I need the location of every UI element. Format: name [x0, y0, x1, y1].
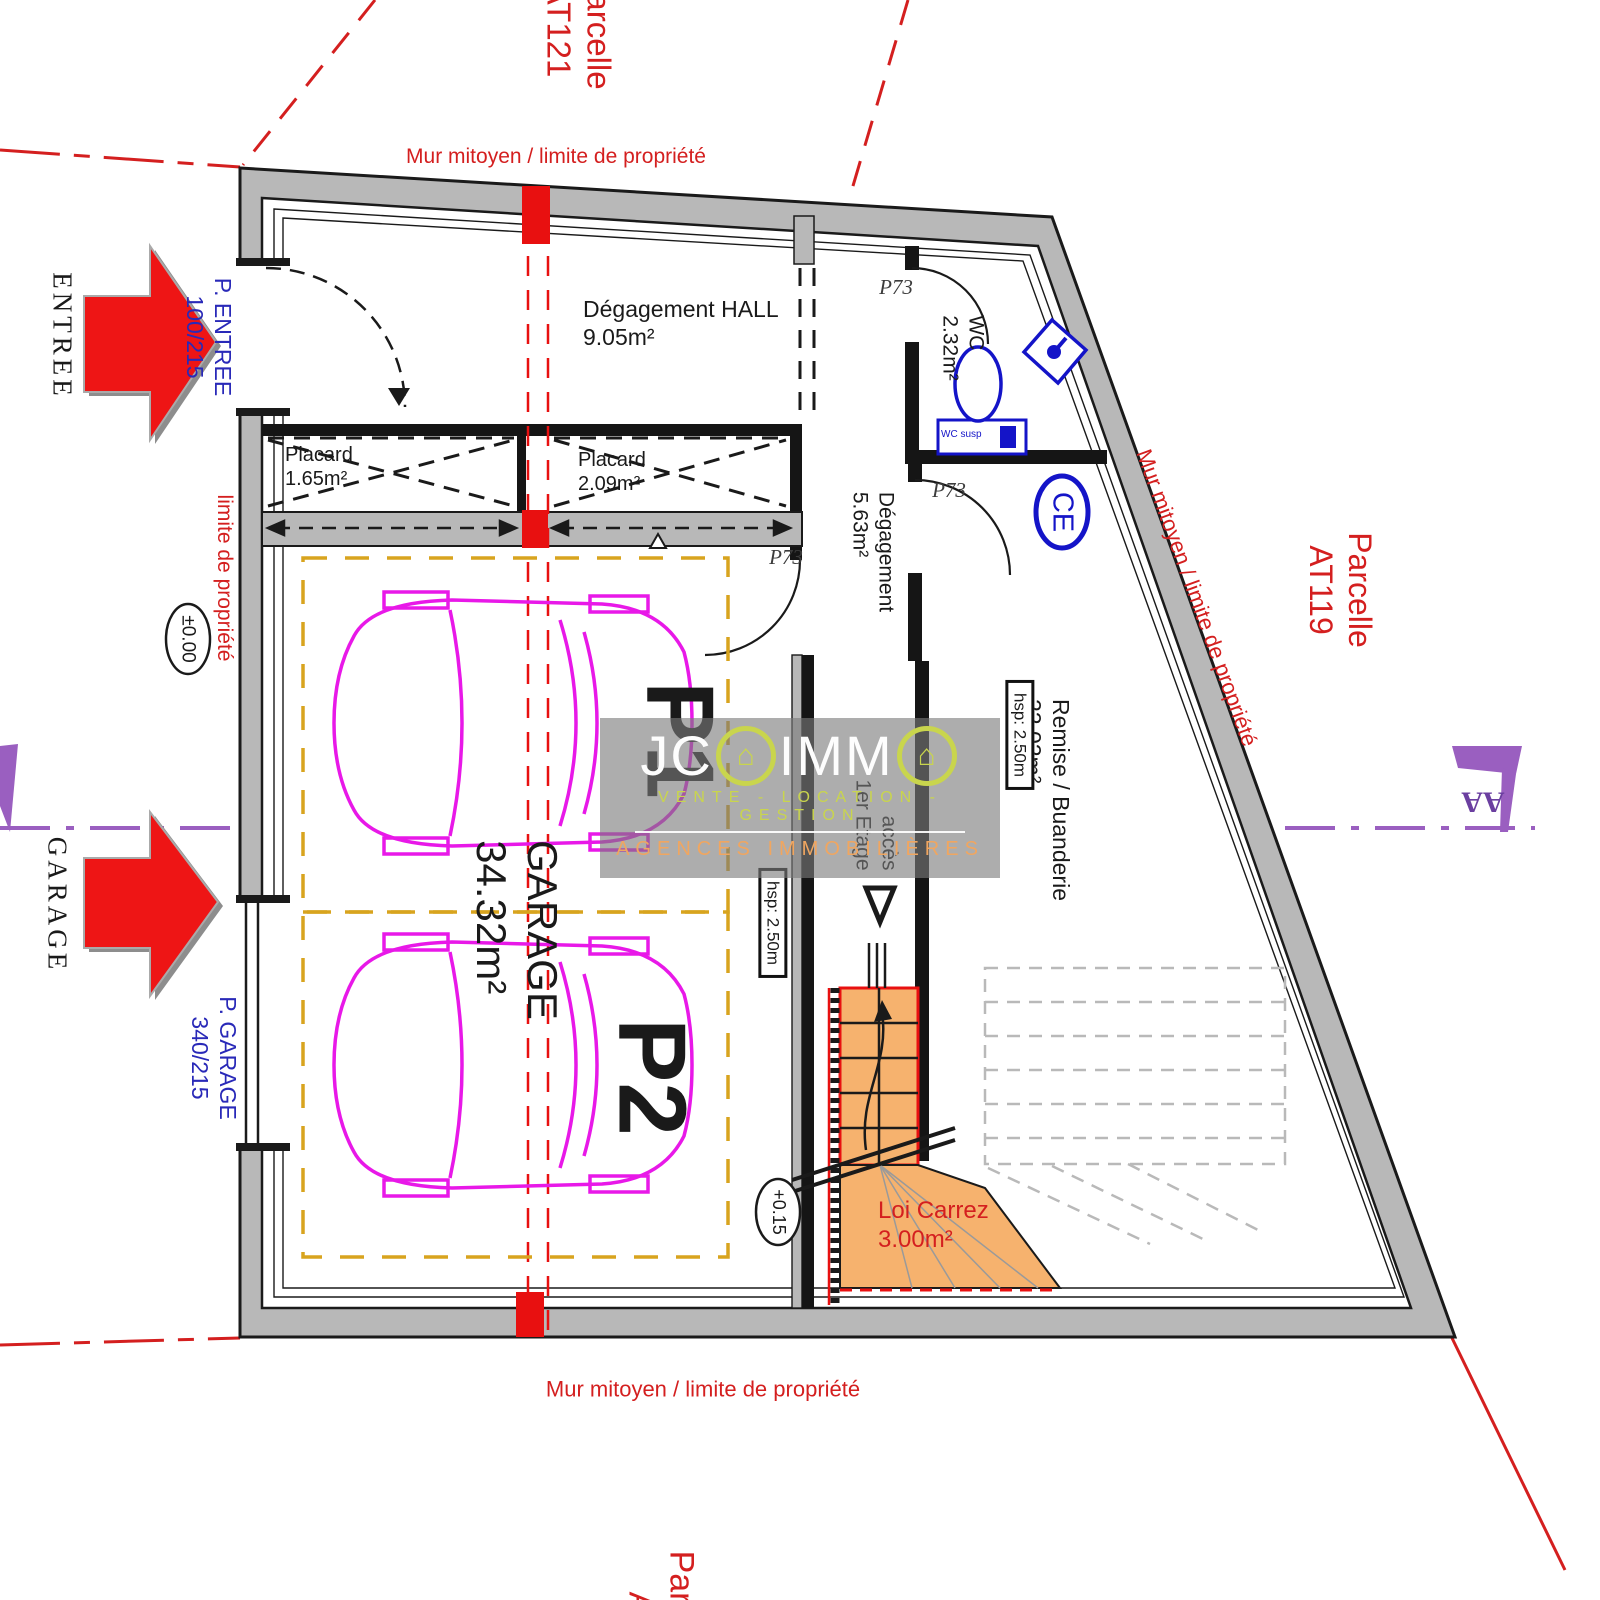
- placard2-area: 2.09m²: [578, 472, 646, 496]
- label-room-wc: WC2.32m²: [937, 315, 988, 380]
- floor-plan-page: Mur mitoyen / limite de propriété Parcel…: [0, 0, 1600, 1600]
- porte-entree-ref: P. ENTREE: [209, 278, 237, 396]
- watermark-divider: [635, 831, 965, 833]
- label-loi-carrez: Loi Carrez3.00m²: [878, 1196, 989, 1255]
- label-porte-garage: P. GARAGE340/215: [186, 996, 242, 1120]
- degagement-name: Dégagement: [873, 492, 899, 612]
- parcelle-right-number: AT119: [1301, 532, 1340, 648]
- watermark-o-circle: ⌂: [897, 726, 957, 786]
- label-room-placard2: Placard2.09m²: [578, 448, 646, 497]
- label-ce: CE: [1044, 492, 1079, 532]
- flush-icon: [1000, 426, 1016, 448]
- label-mur-mitoyen-bottom: Mur mitoyen / limite de propriété: [546, 1377, 860, 1404]
- placard1-name: Placard: [285, 443, 353, 467]
- garage-door-opening: [236, 895, 290, 1151]
- degagement-area: 5.63m²: [847, 492, 873, 612]
- section-flag-right: [1452, 746, 1522, 774]
- parcelle-top-name: Parcelle: [578, 0, 618, 90]
- label-door-ref-remise: P73: [932, 478, 966, 504]
- label-room-placard1: Placard1.65m²: [285, 443, 353, 492]
- watermark-g-circle: ⌂: [716, 726, 776, 786]
- parcelle-bottom-name: Parcelle: [660, 1551, 701, 1600]
- parcelle-right-name: Parcelle: [1340, 532, 1379, 648]
- label-room-garage: GARAGE34.32m²: [466, 840, 568, 1020]
- label-limite-left: limite de propriété: [211, 495, 237, 662]
- loi-carrez-area: 3.00m²: [878, 1225, 989, 1254]
- watermark-jc: JC: [640, 728, 712, 784]
- parcelle-top-number: AT121: [538, 0, 578, 90]
- label-parcelle-right: ParcelleAT119: [1301, 532, 1379, 648]
- hall-area: 9.05m²: [583, 323, 779, 351]
- watermark-logo: JC ⌂ IMM ⌂: [600, 724, 1000, 788]
- section-flag-left: [0, 744, 18, 832]
- label-room-degagement: Dégagement5.63m²: [847, 492, 898, 612]
- label-parking-p2: P2: [593, 1018, 710, 1135]
- watermark-subtitle: AGENCES IMMOBILIÈRES: [600, 838, 1000, 861]
- label-garage-entrance: GARAGE: [41, 837, 74, 974]
- placard1-area: 1.65m²: [285, 467, 353, 491]
- wc-area: 2.32m²: [937, 315, 963, 380]
- watermark-tagline: VENTE - LOCATION - GESTION: [600, 789, 1000, 825]
- hall-name: Dégagement HALL: [583, 295, 779, 323]
- watermark-imm: IMM: [779, 728, 894, 784]
- label-mur-mitoyen-top: Mur mitoyen / limite de propriété: [406, 144, 706, 170]
- garage-area: 34.32m²: [466, 840, 517, 1020]
- label-door-ref-wc: P73: [879, 275, 913, 301]
- label-wc-susp: WC susp: [941, 429, 982, 441]
- placard2-name: Placard: [578, 448, 646, 472]
- label-hsp-remise: hsp: 2.50m: [1009, 680, 1030, 790]
- porte-entree-dim: 100/215: [181, 278, 209, 396]
- house-icon: ⌂: [737, 741, 755, 771]
- label-parcelle-top: ParcelleAT121: [538, 0, 619, 90]
- porte-garage-dim: 340/215: [186, 996, 214, 1120]
- loi-carrez-name: Loi Carrez: [878, 1196, 989, 1225]
- label-porte-entree: P. ENTREE100/215: [181, 278, 237, 396]
- porte-garage-ref: P. GARAGE: [214, 996, 242, 1120]
- label-parcelle-bottom: ParcelleAT: [619, 1551, 702, 1600]
- hsp-garage-value: hsp: 2.50m: [758, 868, 787, 978]
- label-hsp-garage: hsp: 2.50m: [762, 868, 783, 978]
- parcelle-bottom-number: AT: [619, 1551, 660, 1600]
- label-door-ref-garage: P73: [769, 545, 803, 571]
- hsp-remise-value: hsp: 2.50m: [1005, 680, 1034, 790]
- remise-name: Remise / Buanderie: [1047, 699, 1075, 901]
- label-entree: ENTREE: [46, 272, 79, 399]
- label-room-hall: Dégagement HALL9.05m²: [583, 295, 779, 351]
- label-level-garage: +0.15: [767, 1189, 789, 1235]
- house-icon: ⌂: [918, 741, 936, 771]
- garage-arrow: [84, 812, 223, 1000]
- wc-name: WC: [963, 315, 989, 380]
- label-level-entry: ±0.00: [176, 615, 199, 662]
- garage-name: GARAGE: [517, 840, 568, 1020]
- watermark: JC ⌂ IMM ⌂ VENTE - LOCATION - GESTION AG…: [600, 718, 1000, 878]
- label-section-aa: AA: [1461, 783, 1504, 820]
